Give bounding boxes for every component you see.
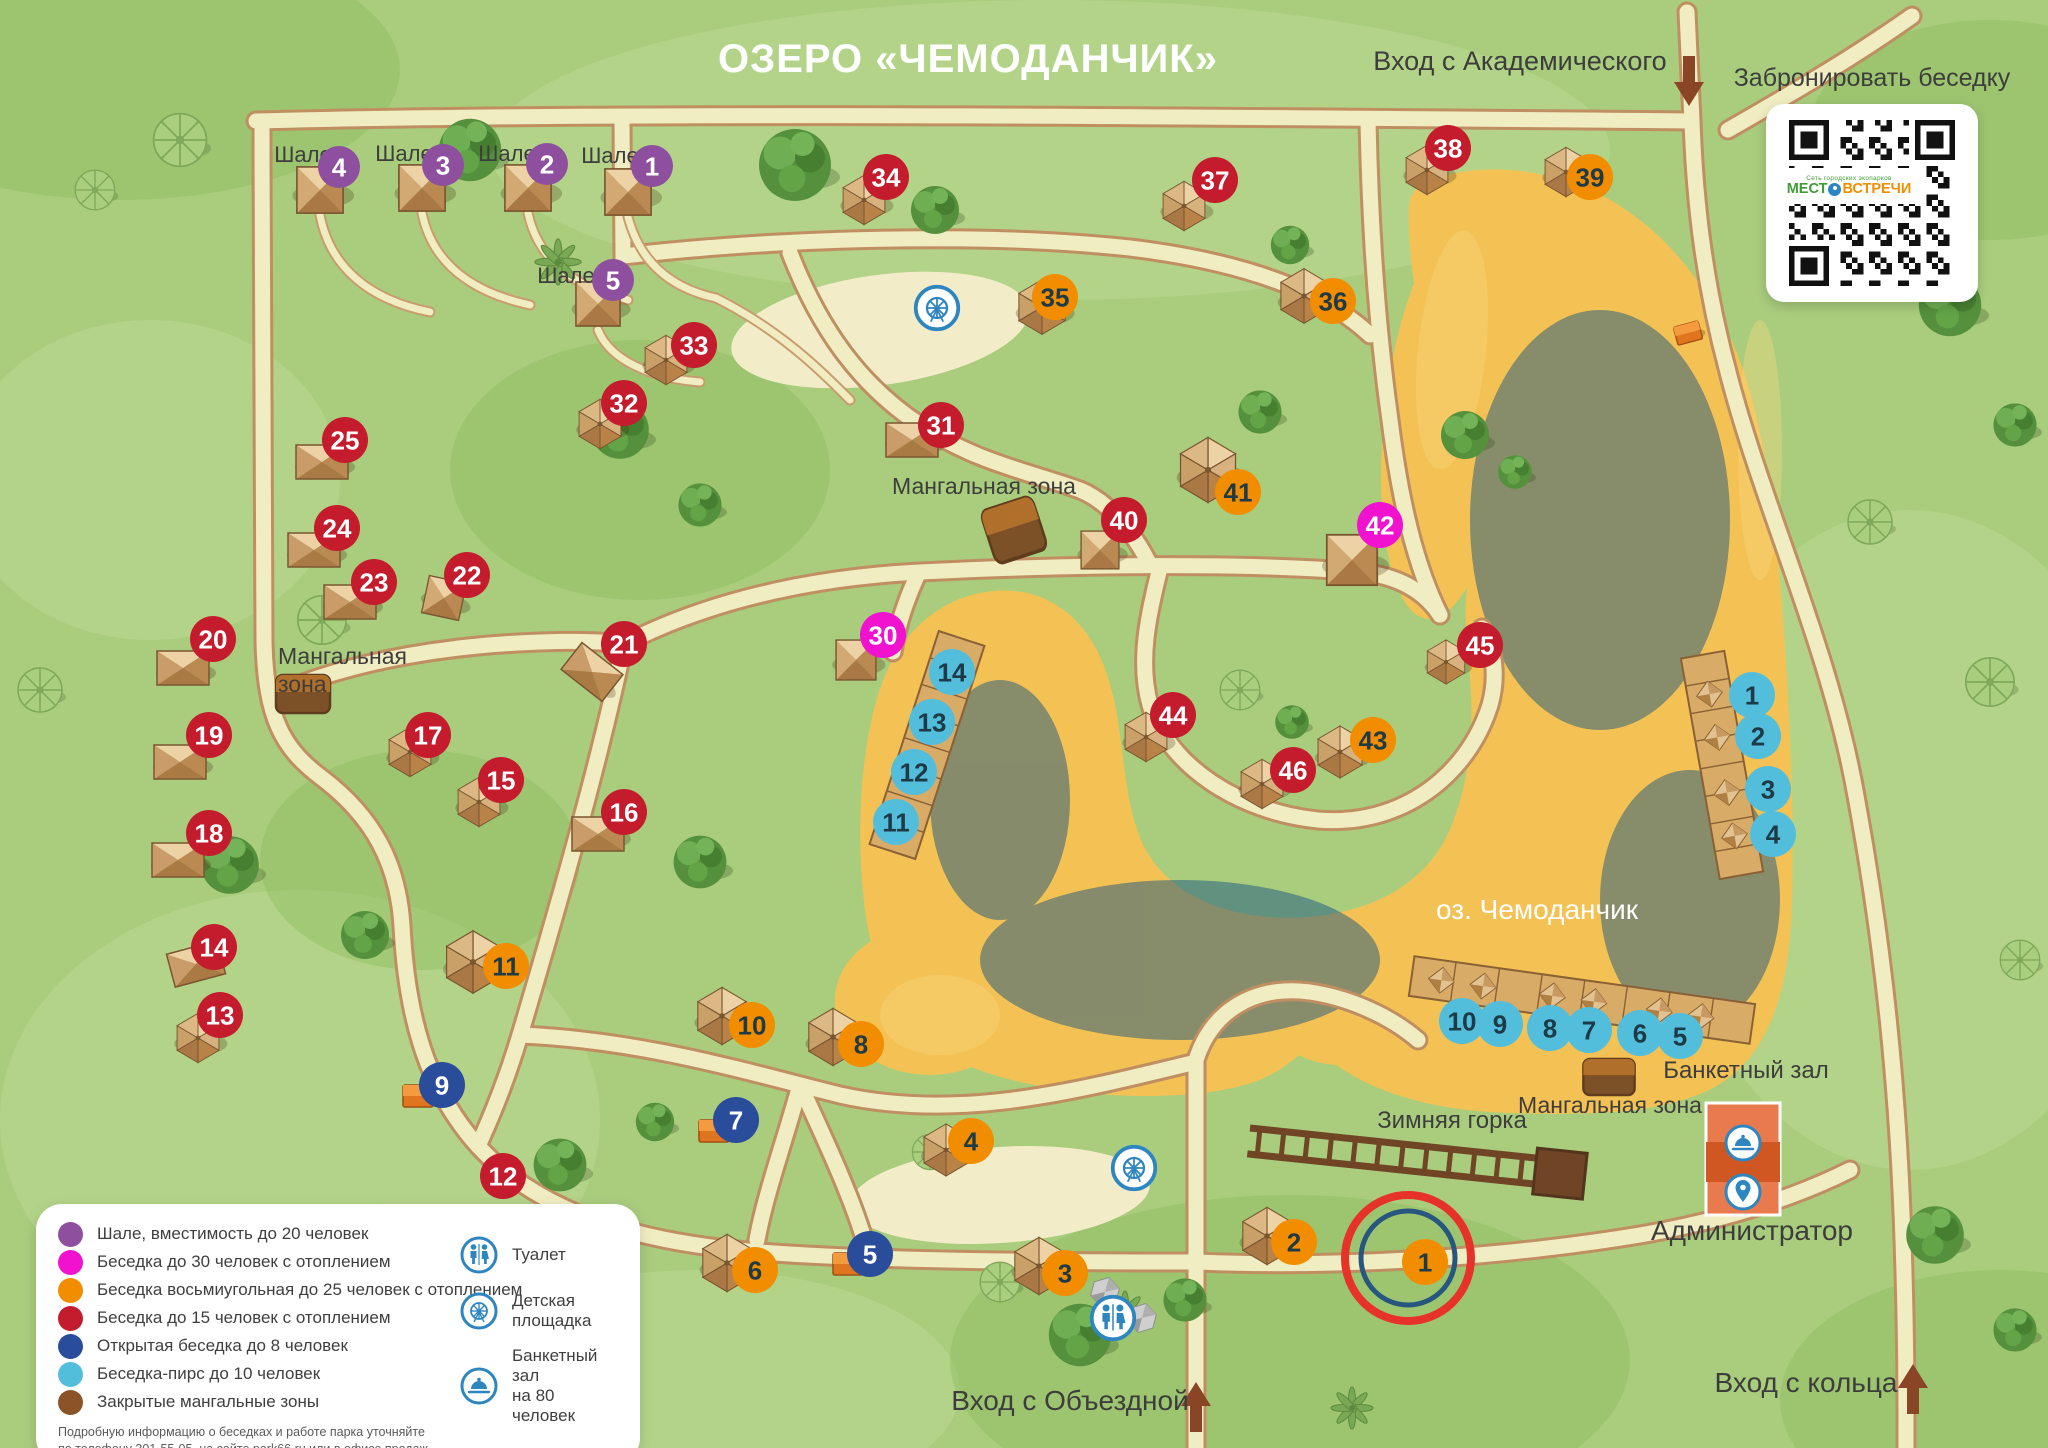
svg-text:9: 9 <box>435 1070 449 1100</box>
svg-text:2: 2 <box>1751 721 1765 751</box>
svg-text:10: 10 <box>738 1010 767 1040</box>
playground-icon <box>1113 1147 1156 1190</box>
marker-red-44[interactable]: 44 <box>1150 692 1196 738</box>
svg-text:40: 40 <box>1110 505 1139 535</box>
entrance-academic-label: Вход с Академического <box>1373 46 1666 76</box>
svg-text:19: 19 <box>195 720 224 750</box>
marker-orange-35[interactable]: 35 <box>1032 274 1078 320</box>
lake-label: оз. Чемоданчик <box>1436 894 1639 925</box>
svg-text:3: 3 <box>436 150 450 180</box>
svg-text:24: 24 <box>323 513 352 543</box>
legend-banquet-row: Банкетный зална 80 человек <box>458 1346 622 1426</box>
svg-text:36: 36 <box>1319 286 1348 316</box>
administrator-label: Администратор <box>1651 1215 1853 1246</box>
svg-text:25: 25 <box>331 425 360 455</box>
legend-panel: Шале, вместимость до 20 человекБеседка д… <box>36 1204 640 1448</box>
svg-text:4: 4 <box>1766 819 1781 849</box>
svg-text:4: 4 <box>332 152 347 182</box>
svg-text:6: 6 <box>1633 1018 1647 1048</box>
svg-text:9: 9 <box>1493 1009 1507 1039</box>
legend-note-line1: Подробную информацию о беседках и работе… <box>58 1424 458 1441</box>
marker-red-16[interactable]: 16 <box>601 789 647 835</box>
marker-orange-11[interactable]: 11 <box>483 943 529 989</box>
marker-lightblue-14[interactable]: 14 <box>929 649 975 695</box>
marker-red-21[interactable]: 21 <box>601 621 647 667</box>
toilet-icon <box>1092 1297 1135 1340</box>
svg-text:34: 34 <box>872 162 901 192</box>
svg-text:14: 14 <box>200 932 229 962</box>
marker-red-32[interactable]: 32 <box>601 380 647 426</box>
legend-item-label: Открытая беседка до 8 человек <box>97 1336 348 1356</box>
marker-magenta-30[interactable]: 30 <box>860 612 906 658</box>
svg-text:5: 5 <box>863 1239 877 1269</box>
legend-item: Беседка до 30 человек с отоплением <box>58 1248 458 1276</box>
banquet-icon <box>1726 1126 1760 1160</box>
brand-pin-icon <box>1828 183 1841 196</box>
marker-lightblue-5[interactable]: 5 <box>1657 1013 1703 1059</box>
legend-icon-label: Банкетный зална 80 человек <box>512 1346 622 1426</box>
qr-brand-left: МЕСТ <box>1787 182 1828 197</box>
marker-orange-10[interactable]: 10 <box>729 1002 775 1048</box>
legend-item-label: Беседка-пирс до 10 человек <box>97 1364 320 1384</box>
marker-orange-3[interactable]: 3 <box>1042 1250 1088 1296</box>
marker-orange-39[interactable]: 39 <box>1567 154 1613 200</box>
legend-item-label: Беседка до 30 человек с отоплением <box>97 1252 391 1272</box>
svg-text:6: 6 <box>748 1255 762 1285</box>
marker-red-17[interactable]: 17 <box>405 712 451 758</box>
legend-item: Закрытые мангальные зоны <box>58 1388 458 1416</box>
marker-red-13[interactable]: 13 <box>197 992 243 1038</box>
svg-text:14: 14 <box>938 657 967 687</box>
legend-color-dot <box>58 1362 83 1387</box>
svg-text:3: 3 <box>1761 774 1775 804</box>
marker-lightblue-2[interactable]: 2 <box>1735 713 1781 759</box>
marker-orange-1[interactable]: 1 <box>1402 1239 1448 1285</box>
marker-orange-43[interactable]: 43 <box>1350 717 1396 763</box>
mangal-zone-label: Мангальная <box>278 643 407 669</box>
marker-red-38[interactable]: 38 <box>1425 125 1471 171</box>
marker-lightblue-7[interactable]: 7 <box>1566 1007 1612 1053</box>
marker-orange-6[interactable]: 6 <box>732 1247 778 1293</box>
qr-booking-card[interactable]: Сеть городских экопарков МЕСТВСТРЕЧИ <box>1766 104 1978 302</box>
svg-text:46: 46 <box>1279 755 1308 785</box>
legend-icon-label: Туалет <box>512 1245 566 1265</box>
svg-text:1: 1 <box>645 151 659 181</box>
marker-lightblue-13[interactable]: 13 <box>909 699 955 745</box>
marker-lightblue-4[interactable]: 4 <box>1750 811 1796 857</box>
svg-text:1: 1 <box>1745 680 1759 710</box>
marker-lightblue-3[interactable]: 3 <box>1745 766 1791 812</box>
marker-red-12[interactable]: 12 <box>480 1153 526 1199</box>
svg-text:3: 3 <box>1058 1258 1072 1288</box>
svg-text:17: 17 <box>414 720 443 750</box>
svg-text:18: 18 <box>195 818 224 848</box>
marker-red-34[interactable]: 34 <box>863 154 909 200</box>
marker-red-46[interactable]: 46 <box>1270 747 1316 793</box>
legend-icon-label: Детскаяплощадка <box>512 1291 591 1331</box>
svg-text:8: 8 <box>854 1029 868 1059</box>
entrance-koltso-label: Вход с кольца <box>1715 1367 1898 1398</box>
svg-text:23: 23 <box>360 567 389 597</box>
marker-red-23[interactable]: 23 <box>351 559 397 605</box>
marker-red-25[interactable]: 25 <box>322 417 368 463</box>
map-title: ОЗЕРО «ЧЕМОДАНЧИК» <box>718 37 1218 81</box>
svg-text:35: 35 <box>1041 282 1070 312</box>
marker-purple-4[interactable]: 4 <box>318 146 360 188</box>
svg-text:12: 12 <box>489 1161 518 1191</box>
qr-brand-main: МЕСТВСТРЕЧИ <box>1787 182 1912 197</box>
marker-magenta-42[interactable]: 42 <box>1357 502 1403 548</box>
svg-text:4: 4 <box>964 1126 979 1156</box>
mangal-zone-label: Мангальная зона <box>1518 1092 1702 1118</box>
svg-text:38: 38 <box>1434 133 1463 163</box>
banquet-icon <box>458 1365 500 1407</box>
administrator-building <box>1706 1103 1780 1215</box>
chalet-label: Шале <box>581 143 638 168</box>
marker-purple-3[interactable]: 3 <box>422 144 464 186</box>
svg-text:1: 1 <box>1418 1247 1432 1277</box>
marker-red-18[interactable]: 18 <box>186 810 232 856</box>
svg-text:30: 30 <box>869 620 898 650</box>
svg-text:16: 16 <box>610 797 639 827</box>
toilet-icon <box>458 1234 500 1276</box>
svg-text:22: 22 <box>453 560 482 590</box>
marker-lightblue-9[interactable]: 9 <box>1477 1001 1523 1047</box>
svg-text:43: 43 <box>1359 725 1388 755</box>
marker-red-45[interactable]: 45 <box>1457 622 1503 668</box>
marker-red-19[interactable]: 19 <box>186 712 232 758</box>
svg-text:20: 20 <box>199 624 228 654</box>
legend-note-line2: по телефону 301-55-05, на сайте park66.r… <box>58 1441 458 1448</box>
legend-color-dot <box>58 1222 83 1247</box>
svg-text:7: 7 <box>1582 1015 1596 1045</box>
legend-item-label: Закрытые мангальные зоны <box>97 1392 319 1412</box>
marker-orange-41[interactable]: 41 <box>1215 469 1261 515</box>
svg-text:41: 41 <box>1224 477 1253 507</box>
qr-brand-right: ВСТРЕЧИ <box>1842 182 1911 197</box>
legend-item: Беседка-пирс до 10 человек <box>58 1360 458 1388</box>
svg-text:5: 5 <box>606 265 620 295</box>
svg-text:31: 31 <box>927 410 956 440</box>
banquet-hall-label: Банкетный зал <box>1663 1057 1829 1084</box>
marker-red-31[interactable]: 31 <box>918 402 964 448</box>
marker-darkblue-7[interactable]: 7 <box>713 1097 759 1143</box>
legend-item-label: Беседка до 15 человек с отоплением <box>97 1308 391 1328</box>
marker-red-33[interactable]: 33 <box>671 322 717 368</box>
marker-lightblue-6[interactable]: 6 <box>1617 1010 1663 1056</box>
legend-color-dot <box>58 1390 83 1415</box>
svg-text:7: 7 <box>729 1105 743 1135</box>
legend-item: Шале, вместимость до 20 человек <box>58 1220 458 1248</box>
booking-label: Забронировать беседку <box>1734 64 2011 92</box>
svg-text:15: 15 <box>487 765 516 795</box>
marker-purple-1[interactable]: 1 <box>631 145 673 187</box>
svg-text:37: 37 <box>1201 165 1230 195</box>
marker-lightblue-12[interactable]: 12 <box>891 749 937 795</box>
marker-lightblue-11[interactable]: 11 <box>873 799 919 845</box>
marker-lightblue-1[interactable]: 1 <box>1729 672 1775 718</box>
mangal-zone-label: зона <box>278 671 327 697</box>
svg-text:45: 45 <box>1466 630 1495 660</box>
svg-text:8: 8 <box>1543 1013 1557 1043</box>
location-pin-icon <box>1726 1175 1760 1209</box>
playground-icon <box>916 287 959 330</box>
marker-red-24[interactable]: 24 <box>314 505 360 551</box>
marker-purple-5[interactable]: 5 <box>592 259 634 301</box>
marker-orange-2[interactable]: 2 <box>1271 1219 1317 1265</box>
legend-color-dot <box>58 1250 83 1275</box>
legend-color-dot <box>58 1278 83 1303</box>
svg-text:10: 10 <box>1448 1006 1477 1036</box>
marker-red-15[interactable]: 15 <box>478 757 524 803</box>
chalet-label: Шале <box>537 263 594 288</box>
playground-icon <box>458 1290 500 1332</box>
legend-playground-row: Детскаяплощадка <box>458 1290 622 1332</box>
qr-brand-logo: Сеть городских экопарков МЕСТВСТРЕЧИ <box>1774 168 1924 204</box>
marker-purple-2[interactable]: 2 <box>526 143 568 185</box>
marker-red-37[interactable]: 37 <box>1192 157 1238 203</box>
svg-text:39: 39 <box>1576 162 1605 192</box>
legend-toilet-row: Туалет <box>458 1234 622 1276</box>
marker-orange-36[interactable]: 36 <box>1310 278 1356 324</box>
svg-text:11: 11 <box>882 807 910 837</box>
svg-text:11: 11 <box>492 951 520 981</box>
svg-text:44: 44 <box>1159 700 1188 730</box>
mangal-structure <box>1583 1059 1634 1095</box>
marker-red-22[interactable]: 22 <box>444 552 490 598</box>
marker-red-14[interactable]: 14 <box>191 924 237 970</box>
marker-orange-8[interactable]: 8 <box>838 1021 884 1067</box>
svg-text:5: 5 <box>1673 1021 1687 1051</box>
entrance-obyezdnaya-label: Вход с Объездной <box>951 1385 1188 1416</box>
marker-orange-4[interactable]: 4 <box>948 1118 994 1164</box>
marker-darkblue-9[interactable]: 9 <box>419 1062 465 1108</box>
legend-item: Открытая беседка до 8 человек <box>58 1332 458 1360</box>
svg-text:42: 42 <box>1366 510 1395 540</box>
legend-color-dot <box>58 1334 83 1359</box>
marker-darkblue-5[interactable]: 5 <box>847 1231 893 1277</box>
legend-item: Беседка восьмиугольная до 25 человек с о… <box>58 1276 458 1304</box>
marker-red-40[interactable]: 40 <box>1101 497 1147 543</box>
legend-color-dot <box>58 1306 83 1331</box>
svg-text:21: 21 <box>610 629 639 659</box>
svg-text:2: 2 <box>1287 1227 1301 1257</box>
svg-text:12: 12 <box>900 757 929 787</box>
park-map: ОЗЕРО «ЧЕМОДАНЧИК»Вход с АкадемическогоЗ… <box>0 0 2048 1448</box>
winter-slide-label: Зимняя горка <box>1377 1107 1527 1134</box>
mangal-zone-label: Мангальная зона <box>892 473 1076 499</box>
marker-red-20[interactable]: 20 <box>190 616 236 662</box>
svg-text:13: 13 <box>206 1000 235 1030</box>
legend-item: Беседка до 15 человек с отоплением <box>58 1304 458 1332</box>
legend-item-label: Шале, вместимость до 20 человек <box>97 1224 368 1244</box>
svg-text:33: 33 <box>680 330 709 360</box>
legend-note: Подробную информацию о беседках и работе… <box>58 1424 458 1448</box>
svg-text:13: 13 <box>918 707 947 737</box>
svg-text:32: 32 <box>610 388 639 418</box>
legend-items: Шале, вместимость до 20 человекБеседка д… <box>58 1220 458 1416</box>
svg-text:2: 2 <box>540 149 554 179</box>
legend-icons: ТуалетДетскаяплощадкаБанкетный зална 80 … <box>458 1220 622 1448</box>
